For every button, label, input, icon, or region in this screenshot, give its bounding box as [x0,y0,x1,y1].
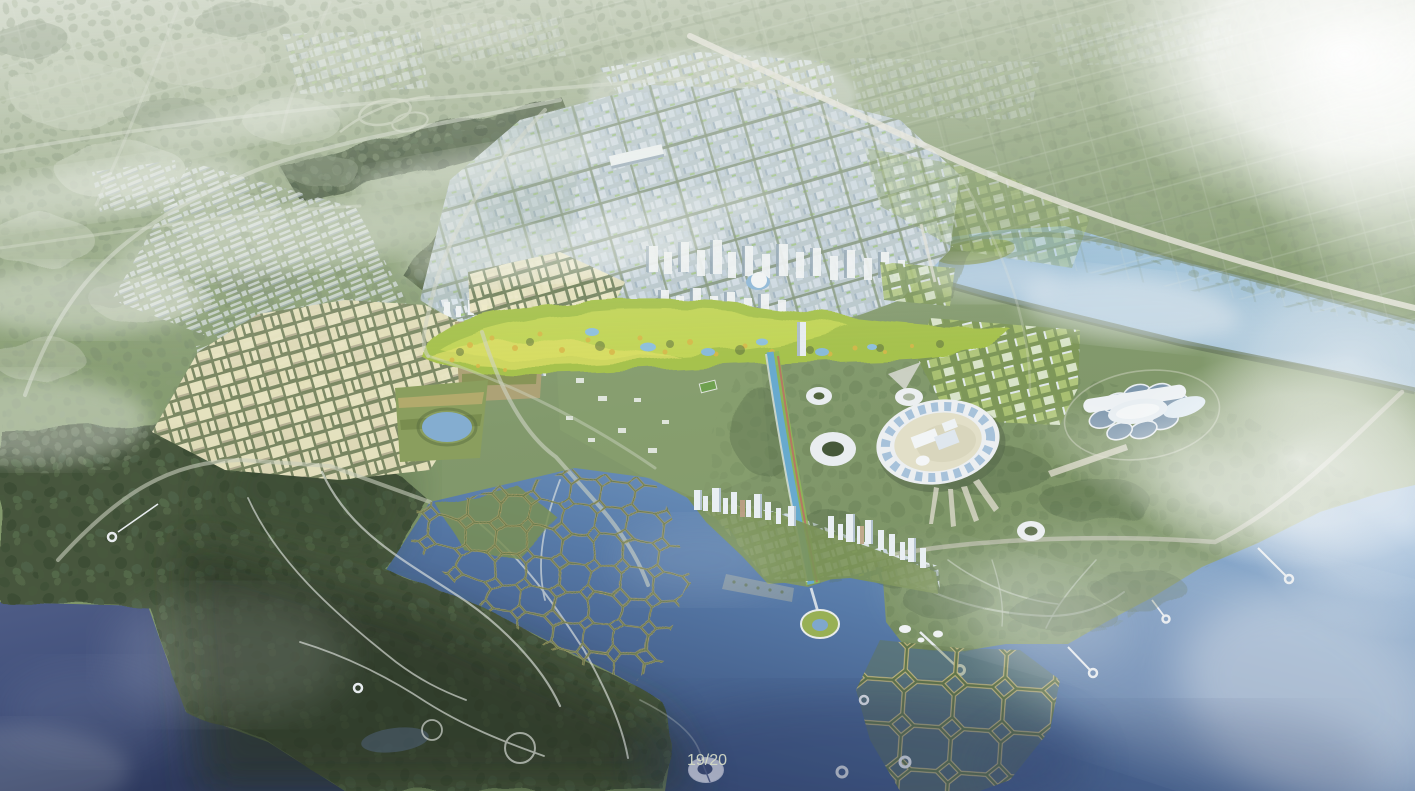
svg-text:19/20: 19/20 [687,752,727,769]
